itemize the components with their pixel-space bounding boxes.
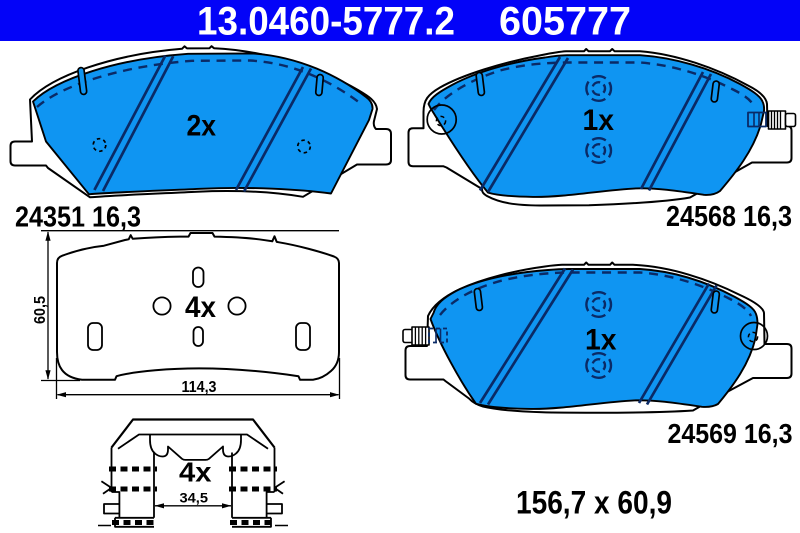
svg-text:1x: 1x: [585, 324, 617, 357]
svg-text:24569 16,3: 24569 16,3: [668, 417, 793, 449]
svg-text:60,5: 60,5: [32, 296, 49, 324]
svg-text:4x: 4x: [179, 456, 212, 487]
svg-text:24351 16,3: 24351 16,3: [15, 201, 141, 233]
svg-text:1x: 1x: [583, 104, 615, 137]
svg-text:156,7 x 60,9: 156,7 x 60,9: [516, 485, 672, 521]
svg-text:4x: 4x: [185, 291, 216, 324]
svg-text:34,5: 34,5: [180, 489, 209, 505]
svg-text:605777: 605777: [499, 0, 631, 44]
svg-text:2x: 2x: [187, 110, 217, 143]
svg-text:24568 16,3: 24568 16,3: [666, 201, 792, 233]
svg-text:13.0460-5777.2: 13.0460-5777.2: [197, 0, 455, 44]
svg-text:114,3: 114,3: [182, 379, 217, 396]
